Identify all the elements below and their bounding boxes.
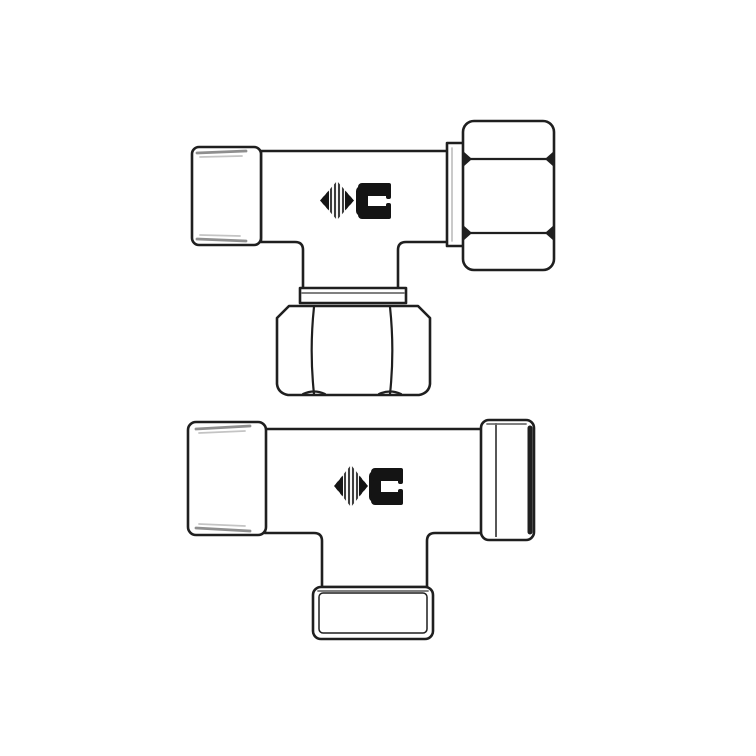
thread-hatch: [200, 156, 242, 157]
thread-hatch: [200, 235, 240, 236]
bottom-hex-nut: [277, 306, 430, 395]
thread-hatch: [197, 239, 246, 241]
male-thread-end: [192, 147, 261, 245]
right-swivel-nut: [463, 121, 554, 270]
bottom-socket-end: [313, 587, 433, 639]
fitting-body: [265, 429, 486, 587]
branch-collar: [300, 288, 406, 303]
fitting-body: [261, 151, 449, 292]
right-socket-end: [481, 420, 534, 540]
thread-hatch: [197, 151, 246, 153]
right-collar: [447, 143, 464, 246]
tee-fitting-with-nuts: C: [192, 121, 554, 395]
fitting-line-drawing-canvas: C: [0, 0, 756, 756]
left-socket-end: [188, 422, 266, 535]
tube-socket-tee-fitting: C: [188, 420, 534, 639]
product-drawing-page: C: [0, 0, 756, 756]
